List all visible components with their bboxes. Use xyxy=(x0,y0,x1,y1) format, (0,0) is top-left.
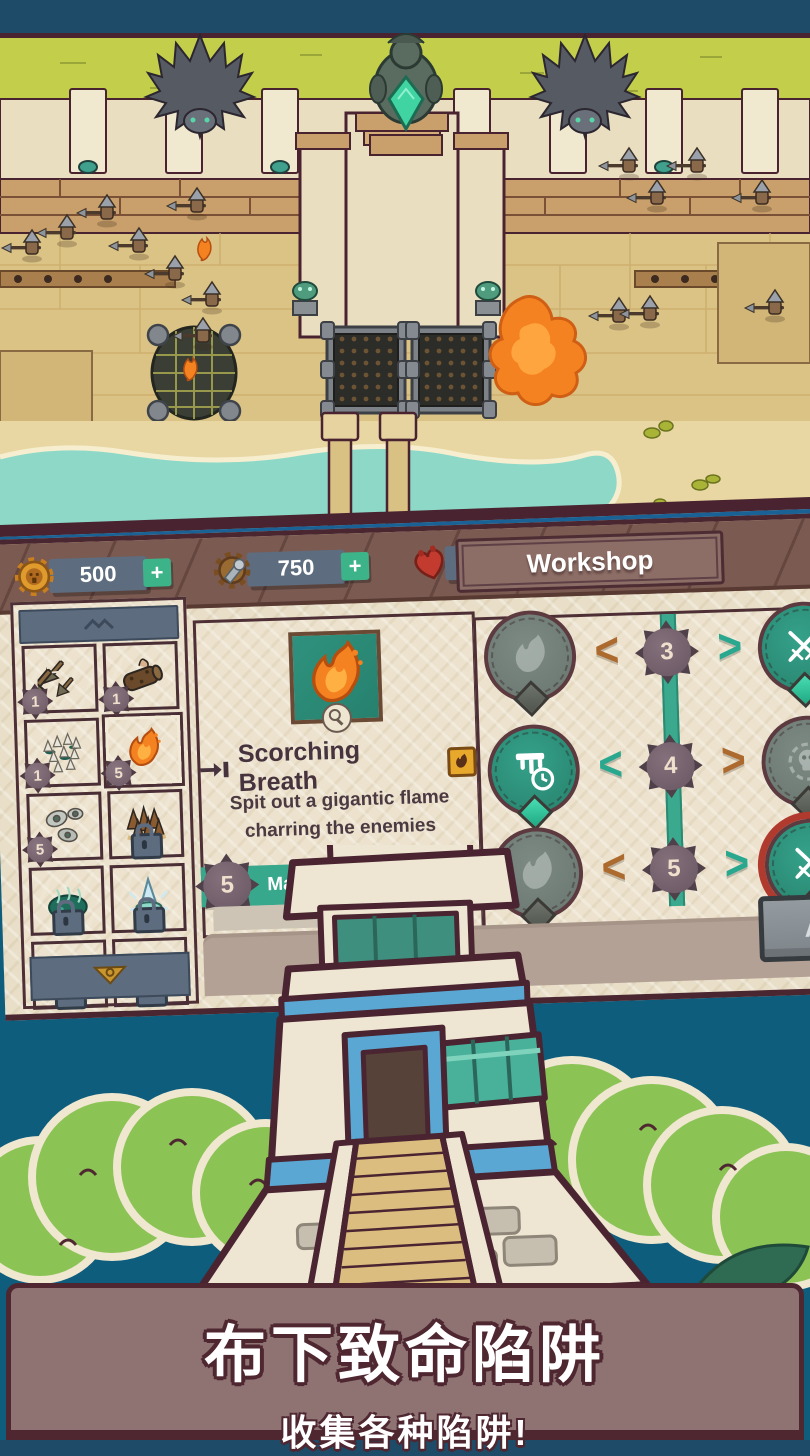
bushes-icon xyxy=(0,1060,810,1287)
level-medallion: 3 xyxy=(634,619,700,685)
gold-ornament-icon xyxy=(87,963,134,990)
tree-row-1: < 3 > xyxy=(477,646,810,658)
workshop-title-plaque: Workshop xyxy=(455,530,725,593)
tree-row-2: < 4 > xyxy=(481,760,810,772)
chevron-left-icon[interactable]: < xyxy=(593,736,629,792)
chevron-right-icon[interactable]: > xyxy=(716,732,752,788)
chevron-left-icon[interactable]: < xyxy=(589,622,625,678)
upgrade-node-flame-locked[interactable] xyxy=(490,826,585,921)
flame-icon xyxy=(505,632,555,682)
gears-count: 750 xyxy=(247,550,346,587)
selected-trap-icon-frame xyxy=(288,629,383,724)
crossed-swords-icon xyxy=(779,623,810,673)
flame-icon xyxy=(512,849,562,899)
trap-tile-caltrops[interactable]: 1 xyxy=(24,718,101,788)
max-level-text: Max level reached xyxy=(267,869,430,896)
gear-nail-icon xyxy=(210,549,253,592)
add-medallion-button[interactable]: + xyxy=(143,558,172,587)
workshop-panel: 500 + 750 + 1,500 + xyxy=(0,513,810,1021)
fire-element-badge-icon xyxy=(447,746,477,777)
currency-gears: 750 + xyxy=(210,545,369,592)
lock-icon xyxy=(132,907,165,934)
level-medallion: 4 xyxy=(638,733,704,799)
crossed-swords-icon xyxy=(786,840,810,890)
trap-tile-boulder[interactable]: 5 xyxy=(26,792,103,862)
chevron-right-icon[interactable]: > xyxy=(712,618,748,674)
sidebar-scroll-up[interactable] xyxy=(18,605,179,644)
cage-trap-icon xyxy=(148,325,240,421)
currency-medallion: 500 + xyxy=(13,551,172,598)
tree-row-3: < 5 > xyxy=(484,863,810,875)
level-medallion: 5 xyxy=(641,836,707,902)
upgrade-info-text: Inflict twice the xyxy=(321,943,473,972)
trap-tile-darts[interactable]: 1 xyxy=(21,644,98,714)
trap-tile-rolling-log[interactable]: 1 xyxy=(102,641,179,711)
upgrade-node-drip-clock[interactable] xyxy=(486,723,581,818)
trap-tile-spike-wall[interactable] xyxy=(107,789,184,859)
caption-title: 布下致命陷阱 xyxy=(11,1304,799,1394)
arrow-into-icon xyxy=(200,759,229,780)
caption-subtitle: 收集各种陷阱! xyxy=(11,1404,799,1456)
trap-tile-poison-pool[interactable] xyxy=(29,866,106,936)
workshop-title: Workshop xyxy=(526,544,654,579)
chevron-right-icon[interactable]: > xyxy=(719,835,755,891)
store-caption-panel: 布下致命陷阱 收集各种陷阱! xyxy=(6,1283,804,1440)
activate-button[interactable]: Activate xyxy=(758,890,810,962)
lock-icon xyxy=(130,833,163,860)
trap-grid: 1 1 xyxy=(21,641,189,1006)
upgrade-node-flame-locked[interactable] xyxy=(483,609,578,704)
upgrade-tree-card: < 3 > xyxy=(473,605,810,929)
skull-icon xyxy=(783,737,810,787)
sun-medallion-icon xyxy=(13,555,56,598)
drip-clock-icon xyxy=(509,746,559,796)
trap-description: Spit out a gigantic flame charring the e… xyxy=(201,782,479,847)
trap-detail-card: Scorching Breath Spit out a gigantic fla… xyxy=(193,611,485,938)
magnifier-icon[interactable] xyxy=(321,702,352,733)
upgrade-node-skull-locked[interactable] xyxy=(760,714,810,809)
lock-icon xyxy=(51,909,84,936)
snake-statue-icon xyxy=(293,282,317,315)
trap-tile-fireball[interactable]: 5 xyxy=(105,715,182,785)
trap-list-sidebar: 1 1 xyxy=(10,597,199,1009)
heart-icon xyxy=(408,542,451,585)
game-scene-illustration xyxy=(0,33,810,545)
snake-statue-icon xyxy=(476,282,500,315)
sidebar-scroll-down[interactable] xyxy=(29,952,190,1001)
upgrade-node-swords[interactable] xyxy=(756,600,810,695)
chevron-left-icon[interactable]: < xyxy=(596,839,632,895)
ornament-icon xyxy=(79,616,119,633)
trap-tile-geyser[interactable] xyxy=(110,863,187,933)
medallion-count: 500 xyxy=(49,556,148,593)
add-gears-button[interactable]: + xyxy=(341,552,370,581)
